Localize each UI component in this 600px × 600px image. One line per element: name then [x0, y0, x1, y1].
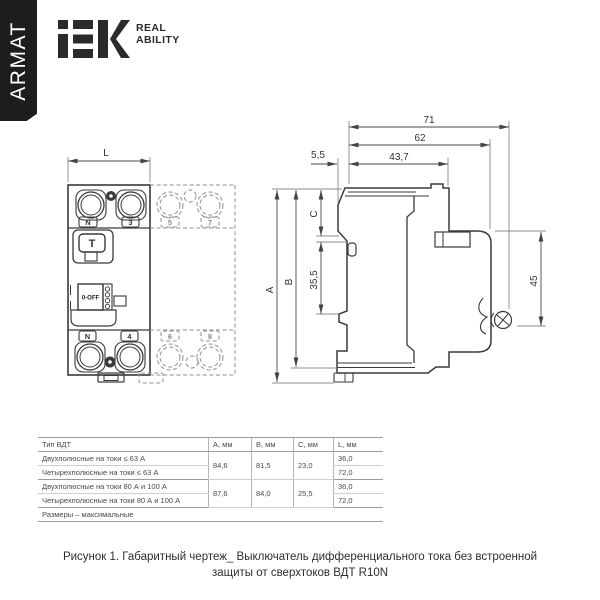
dim-l-label: L — [103, 148, 109, 159]
value-a: 84,6 — [209, 452, 252, 480]
terminal-label-n-bottom: N — [85, 332, 90, 341]
four-pole-dashed-outline: 5 7 6 8 — [139, 185, 235, 383]
iek-logo-mark — [58, 20, 130, 58]
toggle-label: 0-OFF — [82, 296, 100, 302]
terminal-label-6: 6 — [168, 332, 172, 341]
tagline-ability: ABILITY — [136, 34, 180, 46]
col-header-type: Тип ВДТ — [38, 438, 209, 452]
col-header-c: C, мм — [294, 438, 334, 452]
dim-62-label: 62 — [414, 133, 426, 144]
value-b: 81,5 — [252, 452, 294, 480]
test-button-label: T — [89, 238, 96, 250]
value-a: 87,6 — [209, 480, 252, 508]
catalog-page: ARMAT REAL ABILITY L — [0, 0, 600, 600]
front-top-terminals: N 3 — [76, 190, 146, 227]
terminal-label-4: 4 — [127, 332, 132, 341]
col-header-l: L, мм — [334, 438, 384, 452]
col-header-a: A, мм — [209, 438, 252, 452]
figure-caption: Рисунок 1. Габаритный чертеж_ Выключател… — [30, 550, 570, 581]
dim-71-label: 71 — [423, 115, 435, 126]
front-view: L N 3 — [68, 148, 235, 383]
dim-43-7-label: 43,7 — [389, 152, 409, 163]
terminal-label-8: 8 — [208, 332, 212, 341]
terminal-label-7: 7 — [208, 218, 212, 227]
value-l: 36,0 — [334, 452, 384, 466]
terminal-screw-icon — [479, 298, 512, 334]
toggle-switch: 0-OFF — [71, 284, 127, 326]
dimensional-drawing: L N 3 — [30, 105, 575, 405]
value-l: 72,0 — [334, 466, 384, 480]
row-type: Двухполюсные на токи 80 А и 100 А — [38, 480, 209, 494]
table-note-row: Размеры – максимальные — [38, 508, 383, 522]
tagline-real: REAL — [136, 22, 166, 34]
terminal-label-5: 5 — [168, 218, 172, 227]
terminal-label-n-top: N — [85, 218, 90, 227]
col-header-b: B, мм — [252, 438, 294, 452]
value-l: 36,0 — [334, 480, 384, 494]
dim-c-label: C — [309, 210, 320, 217]
dim-a-label: A — [265, 286, 276, 293]
caption-line-2: защиты от сверхтоков ВДТ R10N — [30, 566, 570, 582]
dim-5-5-label: 5,5 — [311, 150, 325, 161]
table-row: Двухполюсные на токи ≤ 63 А 84,6 81,5 23… — [38, 452, 383, 466]
value-c: 25,5 — [294, 480, 334, 508]
side-view: 71 62 43,7 5,5 A B C 35,5 45 — [265, 115, 546, 383]
row-type: Четырехполюсные на токи ≤ 63 А — [38, 466, 209, 480]
value-c: 23,0 — [294, 452, 334, 480]
value-b: 84,0 — [252, 480, 294, 508]
table-row: Двухполюсные на токи 80 А и 100 А 87,6 8… — [38, 480, 383, 494]
caption-line-1: Рисунок 1. Габаритный чертеж_ Выключател… — [30, 550, 570, 566]
dim-35-5-label: 35,5 — [309, 270, 320, 290]
armat-banner-label: ARMAT — [7, 21, 31, 100]
table-header-row: Тип ВДТ A, мм B, мм C, мм L, мм — [38, 438, 383, 452]
iek-logo: REAL ABILITY — [58, 20, 188, 62]
row-type: Четырехполюсные на токи 80 А и 100 А — [38, 494, 209, 508]
test-button: T — [73, 230, 113, 263]
armat-banner: ARMAT — [0, 0, 37, 121]
table-note: Размеры – максимальные — [38, 508, 383, 522]
dimension-l: L — [68, 148, 150, 182]
dim-b-label: B — [284, 278, 295, 285]
dim-45-label: 45 — [529, 275, 540, 287]
vertical-dimensions: A B C 35,5 45 — [265, 189, 546, 383]
terminal-label-3: 3 — [128, 218, 132, 227]
row-type: Двухполюсные на токи ≤ 63 А — [38, 452, 209, 466]
horizontal-dimensions: 71 62 43,7 5,5 — [311, 115, 509, 309]
value-l: 72,0 — [334, 494, 384, 508]
dimensions-table: Тип ВДТ A, мм B, мм C, мм L, мм Двухполю… — [38, 437, 383, 522]
